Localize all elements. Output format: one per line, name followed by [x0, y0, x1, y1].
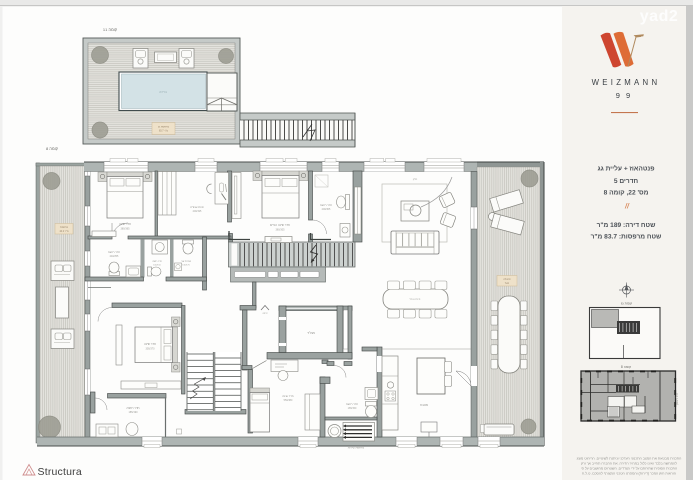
svg-text:פרגולה: פרגולה	[503, 277, 511, 281]
svg-text:240/255: 240/255	[110, 255, 119, 258]
svg-text:קומת גג: קומת גג	[621, 302, 632, 306]
svg-text:חדר שינה: חדר שינה	[282, 394, 293, 398]
svg-text:550/380: 550/380	[284, 399, 293, 402]
svg-text:360/305: 360/305	[275, 229, 285, 232]
svg-text:מעל: מעל	[505, 282, 510, 285]
svg-text:185/190: 185/190	[128, 411, 138, 414]
svg-text:חדר רחצה: חדר רחצה	[108, 250, 120, 254]
svg-text:מטבח: מטבח	[420, 403, 428, 407]
svg-text:התכנית מבטאת את המצב התכנוני ה: התכנית מבטאת את המצב התכנוני העדכני ונית…	[577, 457, 682, 461]
svg-text:מרפסת גג: מרפסת גג	[158, 126, 169, 129]
svg-text:שטח דירה: 189 מ"ר: שטח דירה: 189 מ"ר	[597, 222, 656, 229]
svg-text:פינת אוכל: פינת אוכל	[410, 297, 421, 301]
svg-text:100/150: 100/150	[153, 265, 161, 267]
svg-text:WEIZMANN: WEIZMANN	[592, 78, 661, 87]
svg-text:הוראות חוק המכר (דירות) והמפרט: הוראות חוק המכר (דירות) והמפרט הטכני המצ…	[582, 472, 676, 476]
svg-text:83.7 מ"ר: 83.7 מ"ר	[159, 130, 168, 133]
svg-text:קומה 8: קומה 8	[46, 146, 59, 151]
svg-text:Structura: Structura	[38, 466, 82, 478]
svg-text:5 חדרים: 5 חדרים	[614, 178, 639, 185]
svg-text:מרפסת: מרפסת	[60, 226, 68, 229]
svg-text:התכנית הסופית שתיחתם על ידי הצ: התכנית הסופית שתיחתם על ידי הצדדים. השטח…	[581, 467, 677, 471]
svg-text:200/195: 200/195	[193, 210, 202, 213]
svg-text:פנטהאוז + עליית גג: פנטהאוז + עליית גג	[597, 165, 654, 173]
svg-text:להמחשה בלבד ואינו כלול במחיר ה: להמחשה בלבד ואינו כלול במחיר הדירה. את ה…	[581, 462, 677, 466]
svg-text:קומה 11: קומה 11	[103, 27, 118, 32]
svg-text:שירותי אור: שירותי אור	[181, 261, 191, 263]
svg-text:חדר רחצה: חדר רחצה	[152, 261, 162, 263]
svg-text:380/365: 380/365	[120, 228, 130, 231]
svg-text:חדר רחצה: חדר רחצה	[126, 406, 139, 410]
svg-text:חדר שינה: חדר שינה	[144, 342, 156, 346]
svg-text:305/370: 305/370	[145, 348, 155, 351]
svg-text:מרפסת שירות: מרפסת שירות	[348, 446, 365, 450]
svg-text:yad2: yad2	[640, 8, 678, 25]
svg-text:חדר שינה הורים: חדר שינה הורים	[270, 223, 290, 227]
svg-text:בריכה: בריכה	[159, 90, 167, 94]
svg-text:200/305: 200/305	[322, 208, 331, 211]
svg-text:9 9: 9 9	[616, 91, 632, 100]
svg-text:חדר רחצה: חדר רחצה	[346, 402, 358, 406]
svg-text:מס' 22, קומה 8: מס' 22, קומה 8	[604, 190, 649, 197]
svg-text:רח' ויצמן: רח' ויצמן	[675, 393, 679, 406]
svg-text:130/170: 130/170	[182, 265, 190, 267]
svg-text:פינת עבודה: פינת עבודה	[190, 205, 204, 209]
svg-text:סלון: סלון	[413, 177, 418, 181]
svg-text:קומה 8: קומה 8	[621, 365, 631, 369]
svg-text:שטח מרפסות: 83.7 מ"ר: שטח מרפסות: 83.7 מ"ר	[591, 234, 662, 241]
svg-text:ממ"ד: ממ"ד	[307, 331, 315, 335]
svg-text:165/150: 165/150	[348, 407, 357, 410]
svg-text:חדר רחצה: חדר רחצה	[320, 203, 332, 207]
svg-text:חדר שינה: חדר שינה	[119, 222, 131, 226]
svg-text:44.2 מ"ר: 44.2 מ"ר	[59, 230, 68, 233]
svg-text:כניסה: כניסה	[262, 313, 268, 315]
